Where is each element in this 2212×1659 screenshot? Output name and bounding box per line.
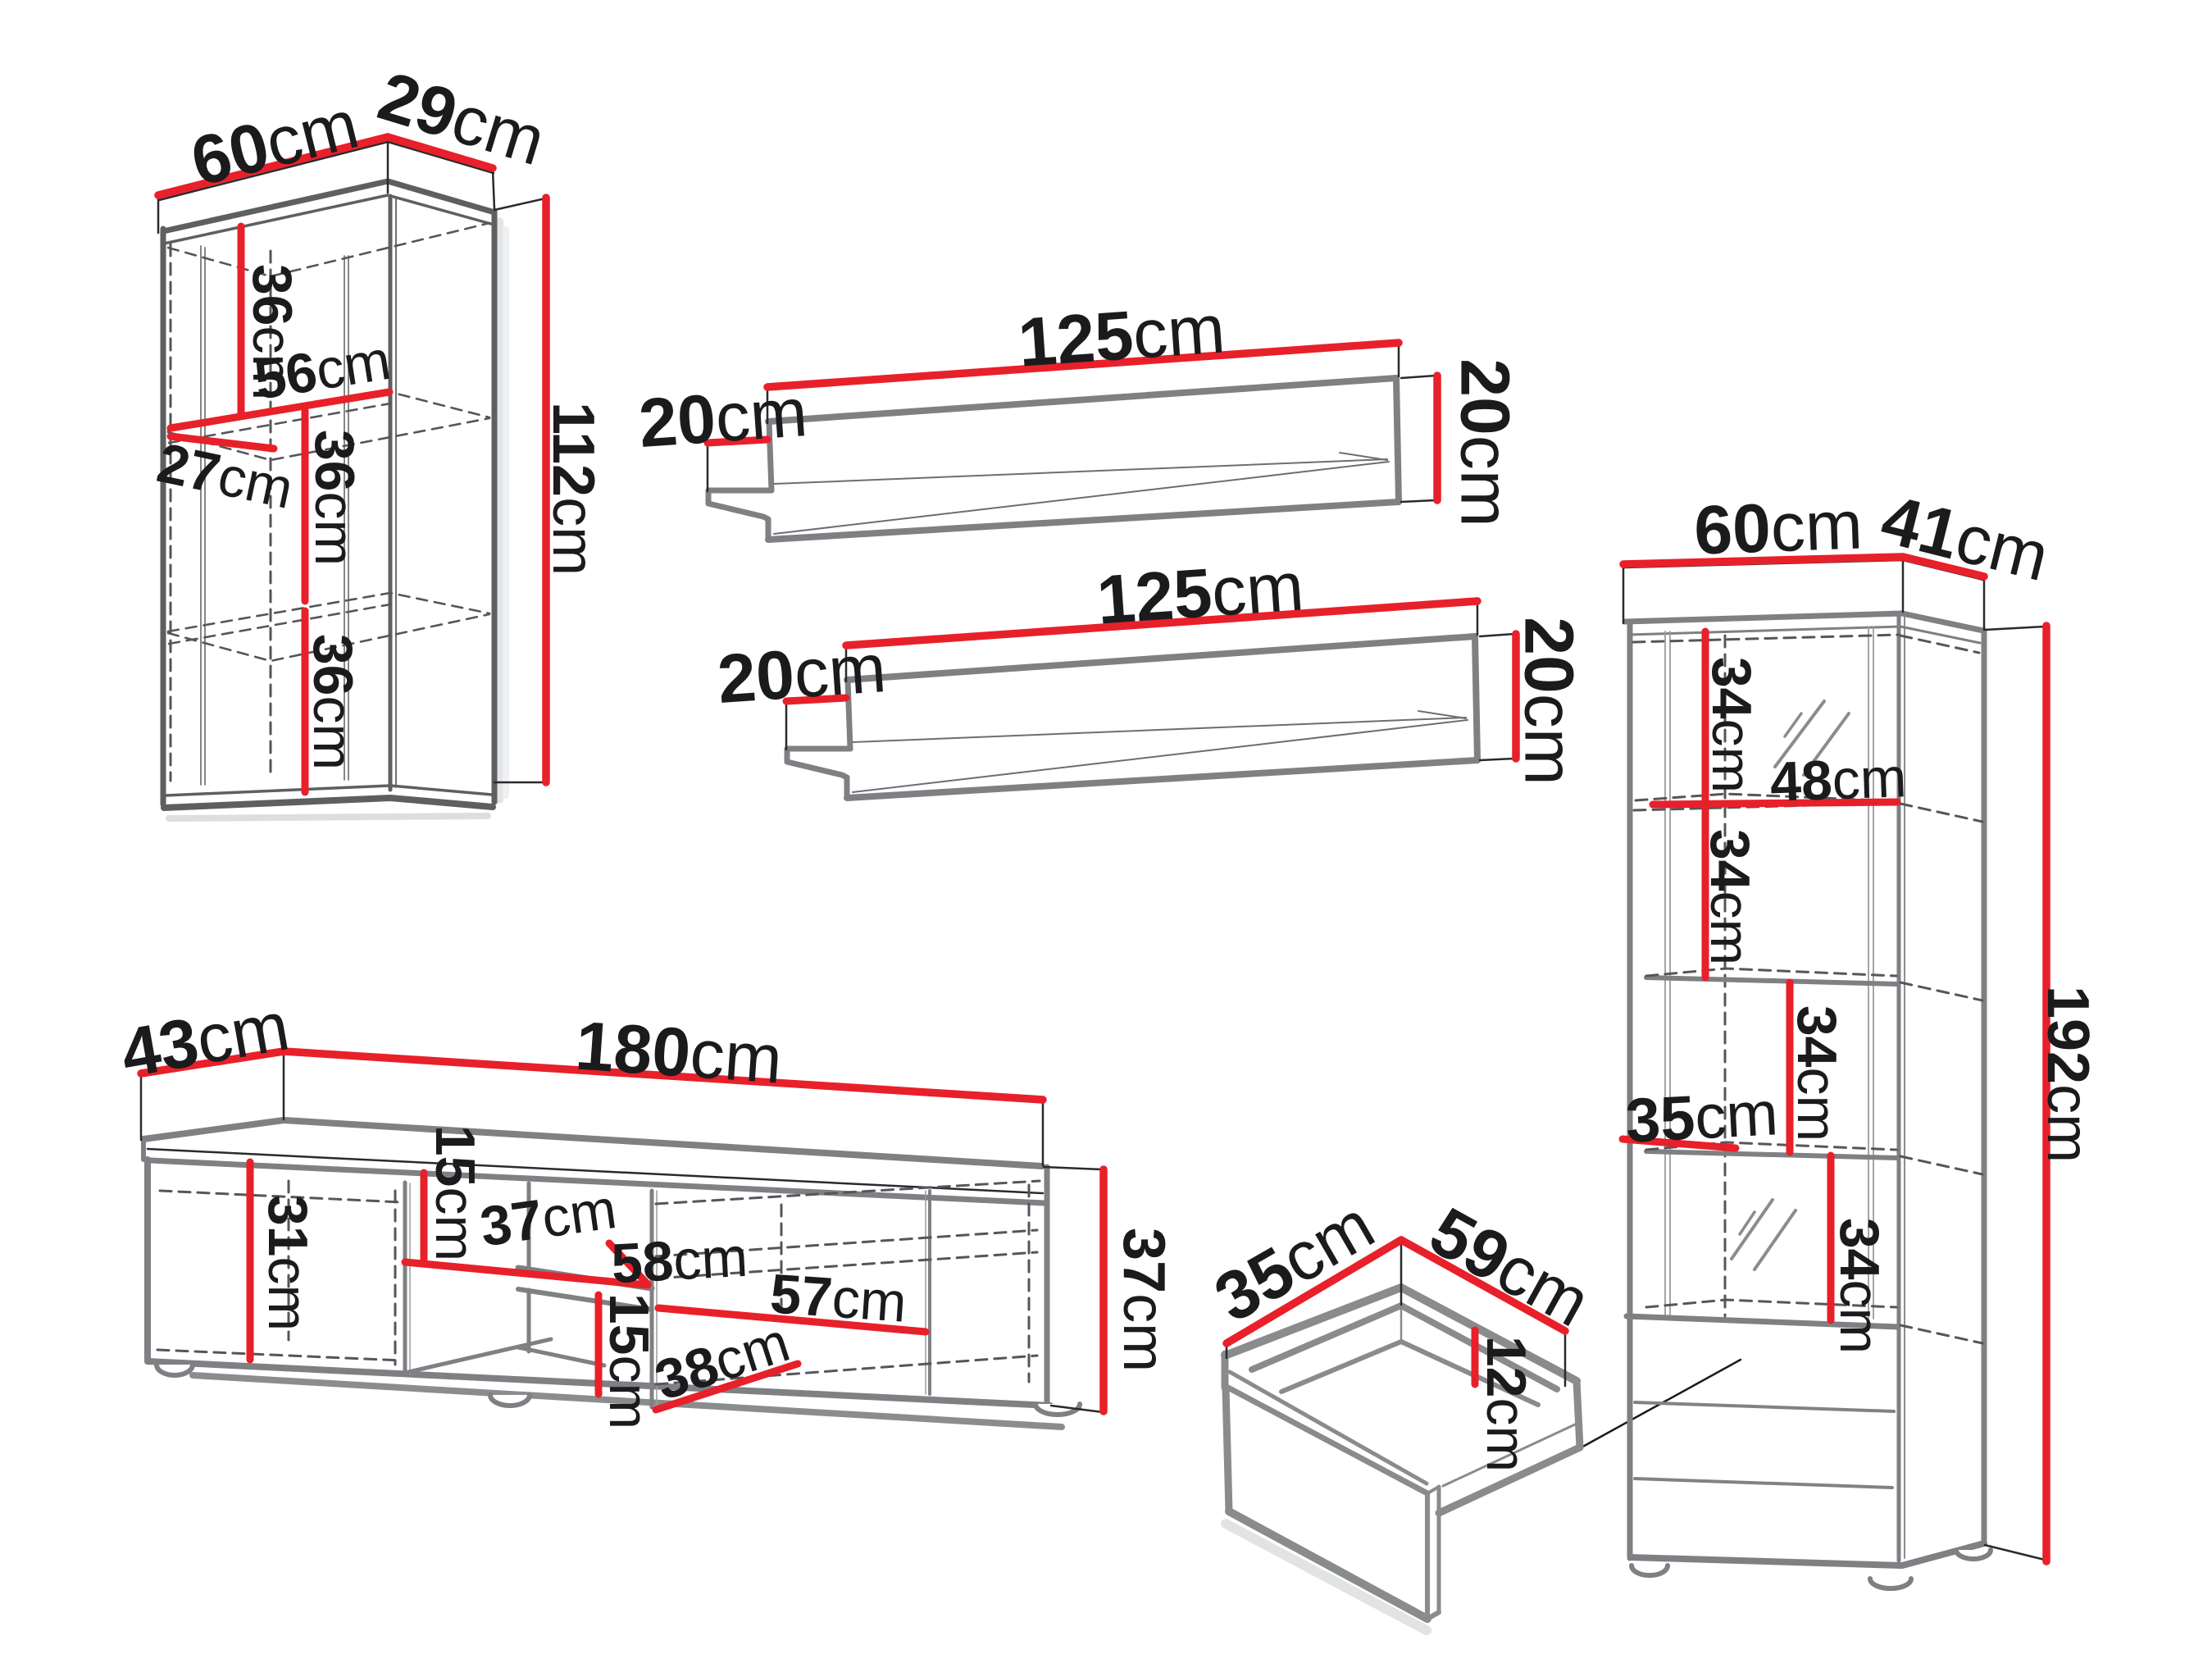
svg-text:34cm: 34cm (1786, 1005, 1848, 1142)
svg-text:60cm: 60cm (1693, 485, 1864, 568)
svg-text:34cm: 34cm (1700, 657, 1763, 793)
svg-text:58cm: 58cm (610, 1226, 749, 1296)
svg-text:37cm: 37cm (1111, 1228, 1177, 1372)
svg-text:15cm: 15cm (424, 1125, 486, 1261)
svg-text:20cm: 20cm (1447, 358, 1524, 526)
svg-text:36cm: 36cm (303, 430, 366, 566)
svg-text:36cm: 36cm (302, 634, 364, 770)
svg-text:48cm: 48cm (1769, 746, 1908, 814)
svg-text:57cm: 57cm (768, 1262, 908, 1333)
svg-text:112cm: 112cm (540, 402, 606, 576)
svg-text:31cm: 31cm (257, 1195, 319, 1331)
svg-text:20cm: 20cm (636, 373, 809, 462)
svg-text:12cm: 12cm (1475, 1336, 1537, 1472)
svg-text:15cm: 15cm (598, 1293, 660, 1429)
svg-text:125cm: 125cm (1016, 289, 1227, 381)
svg-text:34cm: 34cm (1699, 829, 1761, 965)
svg-text:192cm: 192cm (2035, 986, 2100, 1163)
svg-text:180cm: 180cm (573, 1006, 785, 1097)
svg-text:35cm: 35cm (1624, 1078, 1780, 1156)
svg-text:125cm: 125cm (1095, 547, 1306, 638)
svg-text:20cm: 20cm (715, 629, 888, 718)
svg-text:34cm: 34cm (1828, 1218, 1891, 1354)
svg-text:20cm: 20cm (1511, 617, 1588, 785)
